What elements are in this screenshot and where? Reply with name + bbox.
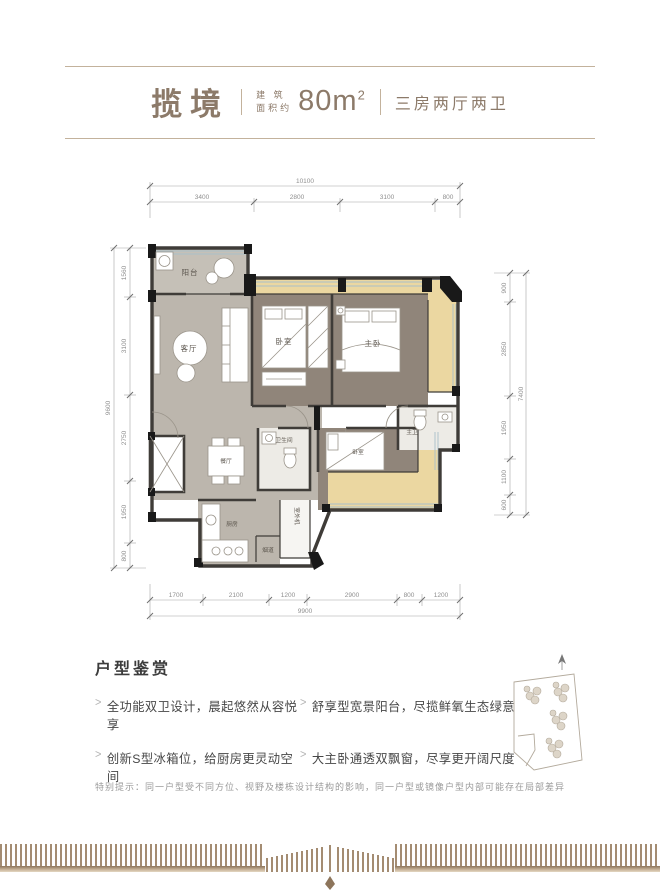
svg-text:600: 600: [501, 499, 508, 510]
svg-text:900: 900: [501, 282, 508, 293]
disclaimer-text: 特别提示：同一户型受不同方位、视野及楼栋设计结构的影响，同一户型或镜像户型内部可…: [0, 780, 660, 793]
feature-item: >舒享型宽景阳台，尽揽鲜氧生态绿意: [300, 697, 515, 733]
dim-top-total: 10100: [296, 178, 314, 185]
brand-title: 揽境: [151, 79, 229, 124]
svg-text:1950: 1950: [501, 420, 508, 435]
room-label-dining: 餐厅: [220, 457, 232, 465]
room-label-living: 客厅: [181, 343, 198, 353]
room-label-master: 主卧: [365, 338, 382, 348]
svg-text:2850: 2850: [501, 341, 508, 356]
arch-ornament-icon: [265, 844, 395, 890]
svg-text:1700: 1700: [169, 592, 184, 599]
svg-text:2750: 2750: [121, 430, 128, 445]
features-title: 户型鉴赏: [95, 655, 515, 679]
svg-text:800: 800: [404, 592, 415, 599]
bottom-decoration: [0, 844, 660, 896]
svg-text:1560: 1560: [121, 265, 128, 280]
room-label-kitchen: 厨房: [226, 520, 238, 528]
layout-type: 三房两厅两卫: [395, 90, 509, 114]
header-separator: [241, 89, 242, 115]
site-key-plan: [500, 648, 592, 783]
area-label: 建 筑 面积约: [256, 89, 292, 113]
dim-right-total: 7400: [518, 386, 525, 401]
north-arrow-icon: [558, 654, 566, 670]
floor-plan: 阳台 客厅 卧室 主卧 主卫 餐厅 卫生间 卧室 厨房 室外机 烟道 10100…: [90, 160, 570, 641]
area-info: 建 筑 面积约 80m2: [256, 85, 366, 118]
svg-text:3100: 3100: [121, 338, 128, 353]
feature-item: >全功能双卫设计，晨起悠然从容悦享: [95, 697, 300, 733]
svg-text:800: 800: [443, 194, 454, 201]
svg-text:1200: 1200: [434, 592, 449, 599]
header-separator-2: [380, 89, 381, 115]
svg-text:2900: 2900: [345, 592, 360, 599]
room-label-flue: 烟道: [262, 546, 274, 554]
room-label-balcony: 阳台: [182, 267, 199, 277]
svg-text:1950: 1950: [121, 504, 128, 519]
svg-text:3100: 3100: [380, 194, 395, 201]
floor-plan-svg: 阳台 客厅 卧室 主卧 主卫 餐厅 卫生间 卧室 厨房 室外机 烟道 10100…: [90, 160, 570, 636]
svg-text:1100: 1100: [501, 470, 508, 484]
header: 揽境 建 筑 面积约 80m2 三房两厅两卫: [65, 66, 595, 139]
header-bottom-rule: [65, 138, 595, 139]
area-value: 80m2: [298, 85, 366, 118]
dim-left-total: 9600: [105, 400, 112, 415]
svg-text:2800: 2800: [290, 194, 305, 201]
svg-text:800: 800: [121, 550, 128, 561]
room-label-bedroom2: 卧室: [276, 336, 293, 346]
chevron-right-icon: >: [95, 695, 102, 735]
chevron-right-icon: >: [300, 695, 307, 735]
svg-text:1200: 1200: [281, 592, 296, 599]
room-label-bath: 卫生间: [275, 436, 293, 444]
room-label-bedroom3: 卧室: [352, 448, 364, 456]
svg-text:2100: 2100: [229, 592, 244, 599]
room-label-master-bath: 主卫: [406, 428, 418, 436]
building-clusters: [524, 682, 569, 758]
dim-bottom-total: 9900: [298, 608, 313, 615]
room-label-ac-unit: 室外机: [293, 507, 301, 525]
features-section: 户型鉴赏 >全功能双卫设计，晨起悠然从容悦享 >创新S型冰箱位，给厨房更灵动空间…: [95, 655, 515, 785]
svg-text:3400: 3400: [195, 194, 210, 201]
